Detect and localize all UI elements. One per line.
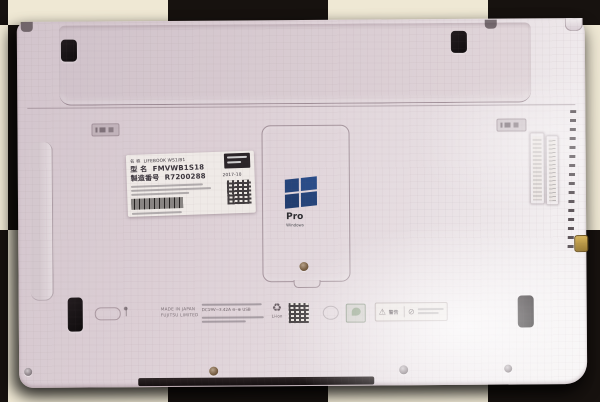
rubber-foot-top-left	[61, 40, 77, 62]
photo-scene: 名 称 LIFEBOOK WS1/B1 型 名 FMVWB1S18 製造番号 R…	[0, 0, 600, 402]
made-in-text: MADE IN JAPAN	[161, 307, 199, 313]
fine-print	[131, 192, 189, 196]
left-side-flap	[30, 142, 54, 301]
rubber-foot-bottom-left	[68, 298, 83, 332]
rating-block: DC19V⎓3.42A ⊖–⊕ USB	[202, 303, 268, 322]
regulatory-black-box	[224, 153, 251, 169]
case-screw-2	[209, 367, 218, 376]
qr-code	[227, 180, 252, 205]
battery-type-text: Li-ion	[272, 314, 283, 319]
rubber-foot-top-right	[451, 31, 467, 53]
prohibition-icon: ⊘	[408, 308, 415, 316]
warning-triangle-icon: ⚠	[379, 308, 386, 316]
polarity-icon: ⊖–⊕	[232, 307, 241, 312]
hinge-left	[21, 22, 33, 32]
windows-edition-text: Pro	[286, 213, 303, 222]
fine-print	[131, 187, 211, 192]
windows-logo-icon	[285, 176, 317, 209]
memory-cover-screw	[299, 262, 308, 271]
recycle-icon: ♻	[269, 302, 285, 314]
warning-text: 警告	[389, 308, 399, 315]
windows-brand-text: Windows	[286, 223, 304, 228]
qr-code-2	[289, 303, 309, 323]
side-label-2	[546, 135, 559, 205]
case-screw-1	[24, 368, 32, 376]
barcode	[131, 197, 183, 210]
hinge-right	[485, 20, 497, 29]
hinge-cover-right	[565, 18, 583, 31]
warning-strip: ⚠ 警告 ⊘	[375, 302, 448, 322]
memory-cover: Pro Windows	[261, 125, 350, 283]
manufacturer-text: FUJITSU LIMITED	[161, 313, 199, 319]
case-screw-3	[399, 365, 408, 374]
rating-line: DC19V⎓3.42A ⊖–⊕ USB	[202, 307, 247, 313]
model-info-label: 名 称 LIFEBOOK WS1/B1 型 名 FMVWB1S18 製造番号 R…	[126, 151, 256, 217]
battery-latch-icon	[91, 123, 119, 136]
case-screw-4	[504, 365, 512, 373]
fine-print	[132, 211, 182, 215]
side-label-1	[530, 132, 546, 204]
eco-mark-icon	[346, 304, 366, 323]
drain-hole-icon	[123, 306, 129, 319]
oval-engraving	[95, 307, 121, 320]
serial-row: 製造番号 R7200288	[130, 171, 205, 184]
battery-lock-icon	[496, 118, 526, 131]
front-edge-strip	[138, 377, 374, 387]
rubber-foot-bottom-right	[518, 295, 534, 327]
memory-cover-tab	[294, 280, 321, 288]
manufacture-date: 2017-10	[222, 172, 241, 178]
laptop-bottom: 名 称 LIFEBOOK WS1/B1 型 名 FMVWB1S18 製造番号 R…	[17, 18, 588, 388]
serial-label: 製造番号	[131, 174, 160, 183]
serial-value: R7200288	[165, 172, 206, 181]
certification-mark-icon	[323, 306, 339, 320]
battery-recycle-block: ♻ Li-ion	[269, 302, 285, 321]
gold-connector	[574, 235, 588, 252]
vent-slots	[567, 110, 576, 252]
